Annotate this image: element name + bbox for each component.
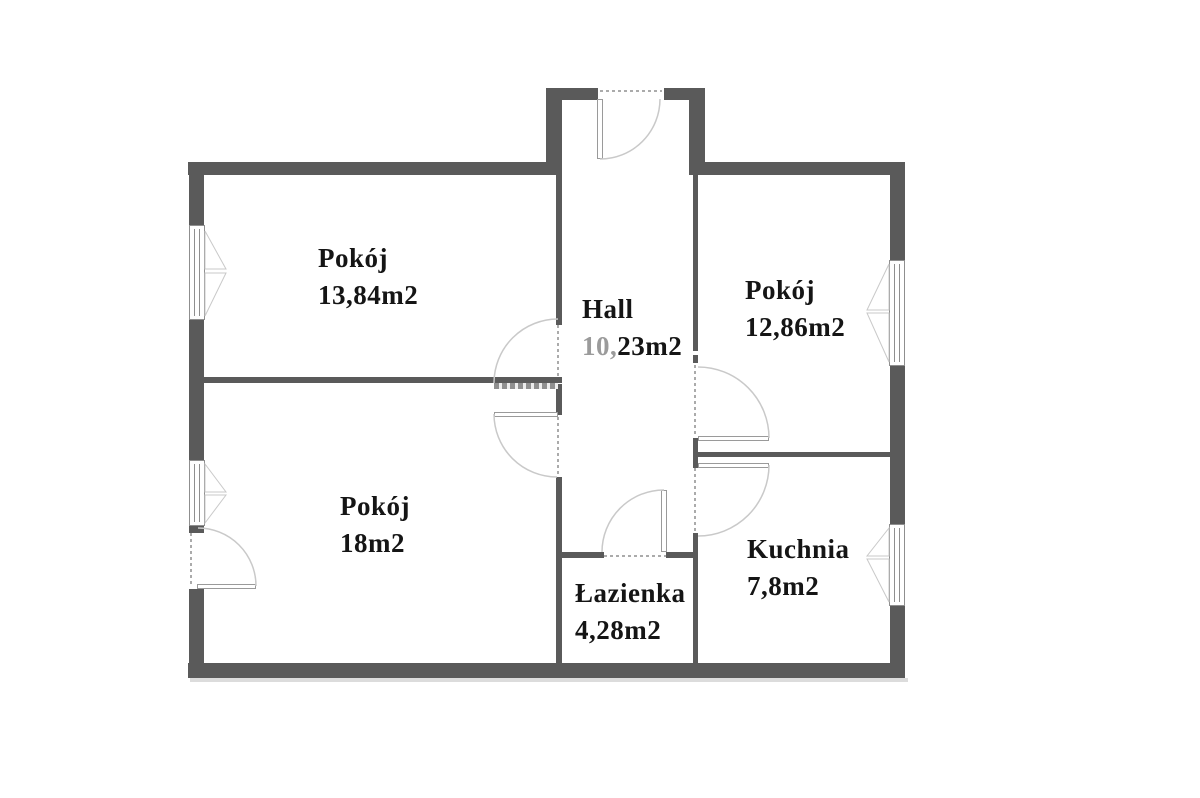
wall-left-segment-3 bbox=[189, 526, 204, 533]
wall-hall-right-3 bbox=[693, 533, 698, 663]
floor-plan: Pokój 13,84m2 Hall 10,23m2 Pokój 12,86m2… bbox=[0, 0, 1200, 798]
window-casement-triangle bbox=[205, 273, 226, 316]
door-opening-lazienka bbox=[604, 555, 666, 557]
wall-hall-lazienka-left bbox=[562, 552, 604, 558]
door-arc-balcony bbox=[198, 528, 256, 586]
room-area-rest-part: 23m2 bbox=[617, 331, 682, 361]
door-opening-kuchnia bbox=[694, 468, 696, 533]
wall-left-segment-1 bbox=[189, 162, 204, 225]
wall-hall-right-dashed bbox=[693, 343, 698, 365]
room-label-pokoj-bottom-left: Pokój 18m2 bbox=[340, 488, 410, 562]
window-casement-triangle bbox=[205, 495, 226, 523]
window-glazing bbox=[194, 464, 200, 522]
wall-top-left bbox=[188, 162, 562, 175]
room-label-lazienka: Łazienka 4,28m2 bbox=[575, 575, 686, 649]
door-leaf-pokoj-bottom-left bbox=[494, 412, 558, 417]
door-arc-entrance bbox=[600, 99, 660, 159]
door-arc-pokoj-bottom-left bbox=[494, 414, 557, 477]
wall-vestibule-right bbox=[689, 88, 705, 175]
room-name: Hall bbox=[582, 291, 682, 328]
door-leaf-balcony bbox=[197, 584, 256, 589]
window-pokoj-top-right bbox=[889, 260, 905, 366]
window-glazing bbox=[894, 528, 900, 602]
wall-hall-lazienka-right bbox=[666, 552, 693, 558]
window-casement-triangle bbox=[867, 313, 889, 362]
room-label-hall: Hall 10,23m2 bbox=[582, 291, 682, 365]
window-casement-triangle bbox=[867, 528, 889, 556]
window-pokoj-top-left bbox=[189, 225, 205, 320]
room-label-pokoj-top-right: Pokój 12,86m2 bbox=[745, 272, 845, 346]
room-area: 12,86m2 bbox=[745, 309, 845, 346]
door-opening-pokoj-top-right bbox=[694, 365, 696, 436]
wall-bottom bbox=[188, 663, 905, 678]
door-leaf-kuchnia bbox=[698, 463, 769, 468]
room-label-kuchnia: Kuchnia 7,8m2 bbox=[747, 531, 850, 605]
wall-right-segment-2 bbox=[890, 366, 905, 524]
door-arc-lazienka bbox=[602, 490, 664, 552]
wall-hall-right-1 bbox=[693, 175, 698, 343]
room-area: 18m2 bbox=[340, 525, 410, 562]
room-name: Łazienka bbox=[575, 575, 686, 612]
door-opening-entrance bbox=[600, 90, 662, 92]
wall-divider-kuchnia bbox=[698, 452, 890, 457]
door-opening-pokoj-top-left bbox=[557, 325, 559, 377]
room-area: 7,8m2 bbox=[747, 568, 850, 605]
window-casement-triangle bbox=[205, 231, 226, 269]
wall-vestibule-top-right bbox=[664, 88, 705, 100]
room-label-pokoj-top-left: Pokój 13,84m2 bbox=[318, 240, 418, 314]
wall-hall-left-1 bbox=[556, 175, 562, 325]
wall-left-segment-2 bbox=[189, 320, 204, 460]
window-casement-triangle bbox=[867, 264, 889, 310]
room-area: 10,23m2 bbox=[582, 328, 682, 365]
door-arc-kuchnia bbox=[698, 465, 769, 536]
window-pokoj-bottom-left bbox=[189, 460, 205, 526]
room-name: Pokój bbox=[745, 272, 845, 309]
door-leaf-pokoj-top-right bbox=[698, 436, 769, 441]
room-name: Kuchnia bbox=[747, 531, 850, 568]
window-casement-triangle bbox=[205, 464, 226, 492]
room-area-muted-part: 10, bbox=[582, 331, 617, 361]
room-name: Pokój bbox=[340, 488, 410, 525]
window-casement-triangle bbox=[867, 559, 889, 602]
door-opening-pokoj-bottom-left bbox=[557, 417, 559, 477]
door-leaf-entrance bbox=[597, 99, 603, 159]
wall-vestibule-left bbox=[546, 88, 562, 175]
wall-lazienka-left bbox=[556, 552, 562, 663]
door-arc-pokoj-top-left bbox=[494, 319, 558, 383]
window-glazing bbox=[194, 229, 200, 316]
wall-hall-left-3 bbox=[556, 477, 562, 552]
door-opening-balcony bbox=[190, 533, 192, 584]
door-leaf-pokoj-top-left bbox=[494, 383, 558, 389]
window-kuchnia bbox=[889, 524, 905, 606]
door-arc-pokoj-top-right bbox=[698, 367, 769, 438]
window-glazing bbox=[894, 264, 900, 362]
door-leaf-lazienka bbox=[661, 490, 667, 552]
room-area: 13,84m2 bbox=[318, 277, 418, 314]
wall-bottom-shadow bbox=[190, 678, 908, 682]
room-name: Pokój bbox=[318, 240, 418, 277]
wall-top-right bbox=[689, 162, 905, 175]
wall-vestibule-top-left bbox=[546, 88, 598, 100]
wall-right-segment-1 bbox=[890, 162, 905, 260]
room-area: 4,28m2 bbox=[575, 612, 686, 649]
